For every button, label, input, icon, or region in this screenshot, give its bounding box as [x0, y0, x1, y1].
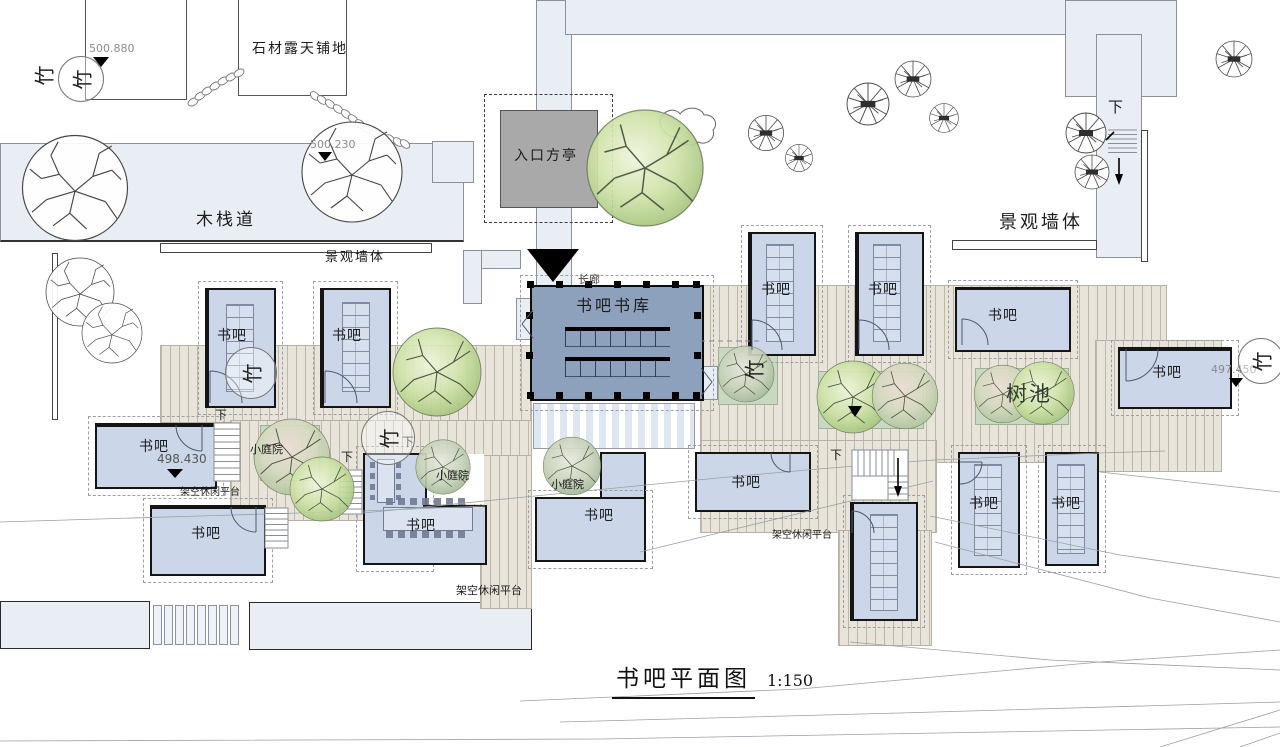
room-label: 书吧: [868, 283, 898, 298]
down-label: 下: [341, 451, 353, 464]
step-bar: [197, 605, 206, 645]
column-marker: [556, 392, 563, 399]
furniture-tables: [870, 514, 898, 611]
column-marker: [693, 281, 700, 288]
entry-path-stub: [432, 141, 474, 183]
landscape-wall-west: [160, 243, 432, 253]
tree-pool-label: 树池: [1006, 383, 1052, 406]
platform-label: 架空休闲平台: [456, 585, 522, 597]
step-bar: [208, 605, 217, 645]
room-label: 书吧: [761, 283, 791, 298]
small-table: [377, 459, 395, 503]
column-marker: [585, 392, 592, 399]
entry-pavilion-label: 入口方亭: [514, 149, 578, 164]
chairs: [396, 462, 401, 500]
column-marker: [527, 392, 534, 399]
room-label: 书吧: [191, 527, 221, 542]
bamboo-mark: 竹: [58, 56, 104, 102]
column-marker: [672, 281, 679, 288]
southwest-walk-b: [249, 602, 532, 650]
column-marker: [694, 352, 701, 359]
column-marker: [614, 281, 621, 288]
elevation-500-880: 500.880: [89, 43, 135, 55]
room-label: 书吧: [584, 509, 614, 524]
room-label: 书吧: [731, 476, 761, 491]
room-label: 书吧: [332, 329, 362, 344]
platform-label: 架空休闲平台: [180, 487, 240, 498]
southwest-walk-a: [0, 601, 150, 649]
down-label: 下: [1108, 99, 1123, 116]
room-label: 书吧: [406, 519, 436, 534]
room-label: 书吧: [217, 329, 247, 344]
landscape-wall-label-east: 景观墙体: [999, 213, 1083, 233]
courtyard-label: 小庭院: [250, 444, 283, 456]
wall-vertical-east: [1141, 130, 1148, 262]
wall-vertical-west: [52, 253, 58, 420]
east-stair-path: [1096, 34, 1142, 258]
room-label: 书吧: [988, 309, 1018, 324]
bookshelf: [565, 357, 670, 377]
column-marker: [672, 392, 679, 399]
column-marker: [556, 281, 563, 288]
corridor-path-v: [463, 250, 482, 304]
column-marker: [643, 281, 650, 288]
planter: [818, 371, 924, 429]
column-marker: [614, 392, 621, 399]
column-marker: [526, 312, 533, 319]
landscape-wall-label-west: 景观墙体: [325, 251, 385, 265]
step-bar: [186, 605, 195, 645]
courtyard-label: 小庭院: [436, 470, 469, 482]
platform-label: 架空休闲平台: [772, 530, 832, 541]
step-bar: [153, 605, 162, 645]
down-label: 下: [215, 409, 227, 422]
down-label: 下: [830, 449, 842, 462]
courtyard-label: 小庭院: [551, 479, 584, 491]
step-bar: [164, 605, 173, 645]
step-bar: [230, 605, 239, 645]
drawing-title-block: 书吧平面图 1:150: [612, 659, 813, 699]
drawing-title: 书吧平面图: [612, 659, 755, 699]
drawing-scale: 1:150: [767, 671, 813, 690]
bamboo-mark: 竹: [26, 58, 60, 92]
stone-paving-label: 石材露天铺地: [252, 42, 348, 57]
book-store-label: 书吧书库: [576, 297, 652, 315]
chairs: [386, 498, 468, 505]
column-marker: [643, 392, 650, 399]
column-marker: [526, 352, 533, 359]
book-bar-room-wing: [600, 452, 646, 499]
bookshelf: [565, 327, 670, 347]
column-marker: [694, 312, 701, 319]
landscape-wall-east: [952, 240, 1097, 250]
room-label: 书吧: [1051, 497, 1081, 512]
step-bar: [175, 605, 184, 645]
room-label: 书吧: [1152, 366, 1182, 381]
elevation-500-230: 500.230: [310, 139, 356, 151]
bamboo-mark: 竹: [734, 350, 772, 388]
step-bar: [219, 605, 228, 645]
boardwalk-label: 木栈道: [196, 211, 256, 230]
chairs: [370, 462, 375, 500]
bamboo-mark: 竹: [1238, 338, 1280, 384]
site-plan: 木栈道 石材露天铺地 入口方亭 长廊 书吧书库 景观墙体 景观墙体 树池 架空休…: [0, 0, 1280, 747]
column-marker: [693, 392, 700, 399]
elevation-498-430: 498.430: [157, 453, 207, 466]
cloud-outline: [660, 108, 716, 145]
room-label: 书吧: [969, 497, 999, 512]
bamboo-mark: 竹: [225, 347, 277, 399]
furniture-tables: [342, 302, 370, 392]
column-marker: [527, 281, 534, 288]
bamboo-mark: 竹: [361, 411, 415, 465]
paver-strip: [533, 403, 695, 449]
book-bar-room: [535, 497, 646, 562]
long-corridor-label: 长廊: [578, 274, 600, 286]
